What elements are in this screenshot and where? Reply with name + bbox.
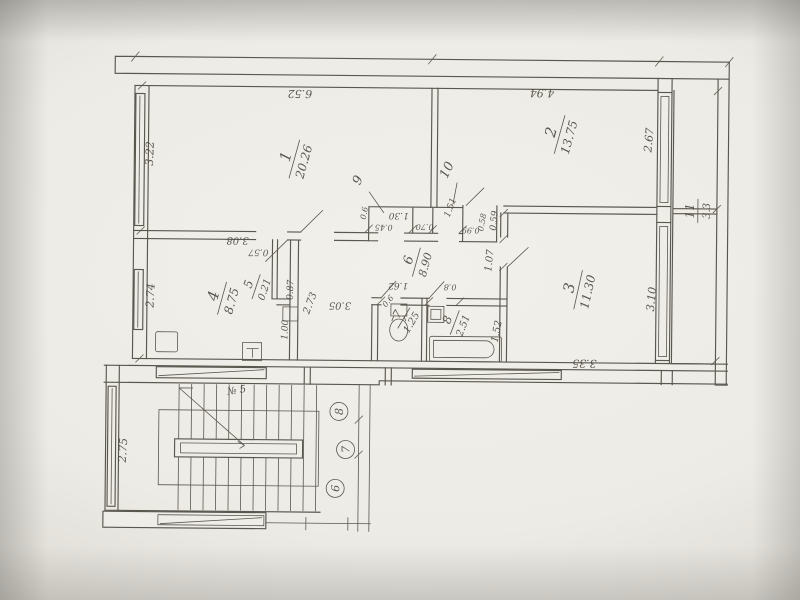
dim-label: 2.75 xyxy=(116,438,131,464)
stove-icon xyxy=(155,332,177,352)
circled-number-7: 7 xyxy=(336,440,354,458)
circled-number-6: 6 xyxy=(326,479,344,497)
annotations-layer: № 5 xyxy=(225,384,247,399)
room-label-5: 50.21 xyxy=(238,270,275,304)
dim-label: 4.94 xyxy=(530,86,556,99)
room-labels-layer: 120.26213.75311.3048.7550.2168.9071.2582… xyxy=(200,107,714,342)
dimension-labels-layer: 6.524.943.222.743.083.052.731.000.570.87… xyxy=(116,82,661,469)
room-number: 8 xyxy=(439,313,455,325)
room-area: 3.3 xyxy=(702,203,713,219)
dim-label: 1.00 xyxy=(280,319,291,340)
room-number: 9 xyxy=(350,173,367,187)
room-area: 13.75 xyxy=(558,119,581,156)
handwritten-note: № 5 xyxy=(225,384,247,398)
exterior-walls xyxy=(103,56,730,533)
staircase xyxy=(158,383,370,532)
circled-number-text: 8 xyxy=(333,408,346,415)
room-label-8: 82.51 xyxy=(436,305,473,340)
dim-label: 0.87 xyxy=(286,279,297,300)
room-label-11: 113.3 xyxy=(683,199,713,223)
interior-walls xyxy=(132,85,658,387)
dim-label: 1.52 xyxy=(490,320,505,344)
room-label-3: 311.30 xyxy=(556,266,599,313)
room-number: 2 xyxy=(541,125,561,140)
dim-label: 3.22 xyxy=(143,141,157,166)
dim-label: 2.73 xyxy=(301,291,319,317)
dim-label: 1.07 xyxy=(483,248,496,272)
dim-label: 1.30 xyxy=(388,210,408,220)
circled-number-text: 7 xyxy=(340,446,353,453)
floor-plan-drawing: 120.26213.75311.3048.7550.2168.9071.2582… xyxy=(0,0,800,600)
room-number: 5 xyxy=(241,278,257,290)
room-label-2: 213.75 xyxy=(537,110,581,158)
room-area: 20.26 xyxy=(292,143,315,181)
floor-plan-photo: 120.26213.75311.3048.7550.2168.9071.2582… xyxy=(0,0,800,600)
room-number: 1 xyxy=(276,150,296,164)
room-label-4: 48.75 xyxy=(200,277,243,319)
room-label-10: 10 xyxy=(437,160,458,181)
dim-label: 0.57 xyxy=(248,247,268,257)
room-number: 10 xyxy=(437,160,458,181)
room-number: 6 xyxy=(401,254,418,266)
dim-label: 2.74 xyxy=(143,283,157,309)
room-number: 4 xyxy=(203,289,223,304)
circled-number-8: 8 xyxy=(330,402,348,420)
room-number: 11 xyxy=(683,203,697,218)
dim-label: 3.05 xyxy=(329,299,351,310)
room-number: 3 xyxy=(559,281,579,294)
room-number: 7 xyxy=(390,308,405,321)
room-label-1: 120.26 xyxy=(272,135,316,183)
dim-label: 3.10 xyxy=(644,286,659,312)
room-area: 8.90 xyxy=(416,251,435,278)
circled-number-text: 6 xyxy=(329,485,342,492)
vent-shaft-icon xyxy=(242,342,261,360)
dim-label: 0.70 xyxy=(416,222,434,231)
room-label-6: 68.90 xyxy=(398,244,436,281)
room-area: 1.25 xyxy=(402,310,423,335)
dim-label: 6.52 xyxy=(288,87,313,100)
dim-label: 0.58 xyxy=(476,213,488,232)
dim-label: 1.62 xyxy=(388,280,408,290)
room-label-9: 9 xyxy=(350,173,367,187)
dim-label: 0.59 xyxy=(489,210,501,231)
dim-label: 0.8 xyxy=(444,282,457,291)
landing-slabs xyxy=(103,366,562,532)
axis-circles-layer: 876 xyxy=(326,402,355,497)
fixtures xyxy=(155,302,502,363)
dim-label: 3.08 xyxy=(226,234,248,245)
dim-label: 0.45 xyxy=(375,223,393,232)
room-area: 0.21 xyxy=(256,277,274,302)
dim-label: 2.67 xyxy=(641,127,656,154)
dim-label: 3.35 xyxy=(572,357,597,370)
